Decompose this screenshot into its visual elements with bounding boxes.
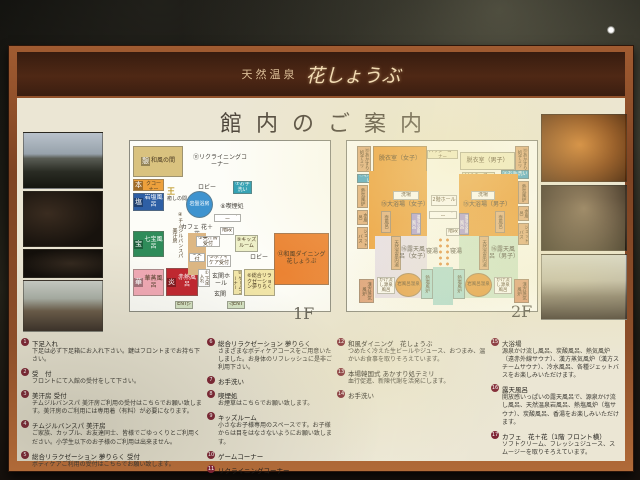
photo-interior-dark-2 xyxy=(23,249,103,278)
f1-shoe-lockers: ①下足入れ xyxy=(198,269,210,287)
flame-icon: 炎 xyxy=(167,278,176,287)
f2-temiri-left: ⑬あかすり処テミリ xyxy=(357,146,371,172)
f2-main-bath-men: ⑮大浴場（男子） xyxy=(463,202,511,209)
photo-bath-warm xyxy=(541,114,627,182)
room-label: 和風の間 xyxy=(151,158,175,165)
floor1-label: 1F xyxy=(293,304,314,323)
legend-desc: ご家族、カップル、お友達同士、皆様でごゆっくりとご利用ください。小学生以下のお子… xyxy=(32,430,203,446)
legend-title: 下足入れ xyxy=(32,338,58,348)
legend-item: 8喫煙処 お煙草はこちらでお願い致します。 xyxy=(207,390,333,408)
f1-room-kasho-bath: 華 華蒸風呂 xyxy=(133,269,164,296)
legend-title: 本場韓国式 あかすり処テミリ xyxy=(348,368,435,378)
legend-item: 11リクライニングコーナー xyxy=(207,465,333,475)
legend-number: 2 xyxy=(21,368,29,376)
photo-building-exterior xyxy=(23,132,103,189)
legend-item: 12和風ダイニング 花しょうぶ つめたく冷えた生ビールやジュース、おつまみ、温か… xyxy=(337,338,487,364)
legend-item: 3美汗房 受付 チムジルバンスパ 美汗房ご利用の受付はこちらでお願い致します。美… xyxy=(21,390,203,416)
f2-salt-sauna-right: 熱塩風炉 xyxy=(453,269,465,299)
f2-powder-corner-left: パウダーコーナー xyxy=(427,150,458,159)
legend-title: 総合リラクゼーション 夢りらく 受付 xyxy=(32,451,140,461)
legend-number: 3 xyxy=(21,390,29,398)
f2-jet-bath-right: ジェットバス xyxy=(518,223,529,245)
f1-ent-right: ◁ENT xyxy=(227,301,245,309)
stepping-stones-left xyxy=(438,237,443,267)
sunlight-dot xyxy=(607,26,615,34)
f1-room-shippo-bath: 宝 七宝風呂 xyxy=(133,231,164,257)
treasure-icon: 宝 xyxy=(134,240,143,249)
f2-hall: 2階ホール xyxy=(431,195,457,206)
legend-number: 8 xyxy=(207,390,215,398)
legend-number: 7 xyxy=(207,376,215,384)
legend-item: 4チムジルバンスパ 美汗房 ご家族、カップル、お友達同士、皆様でごゆっくりとご利… xyxy=(21,420,203,446)
legend-title: 和風ダイニング 花しょうぶ xyxy=(348,338,433,348)
photo-outdoor-rock-bath xyxy=(541,185,627,251)
legend-desc: チムジルバンスパ 美汗房ご利用の受付はこちらでお願い致します。美汗房のご利用には… xyxy=(32,400,203,416)
legend-title: 露天風呂 xyxy=(502,384,528,394)
brand-prefix: 天然温泉 xyxy=(241,66,297,82)
photo-relax-room xyxy=(541,254,627,320)
f2-main-bath-women: ⑮大浴場（女子） xyxy=(381,202,427,209)
legend-column-3: 12和風ダイニング 花しょうぶ つめたく冷えた生ビールやジュース、おつまみ、温か… xyxy=(337,338,487,404)
f2-sauna-right: 熱気風炉 xyxy=(518,181,529,204)
legend-number: 17 xyxy=(491,431,499,439)
legend-number: 1 xyxy=(21,338,29,346)
f1-game-corner: ⑩ゲームコーナー xyxy=(233,270,242,295)
legend-title: 総合リラクゼーション 夢りらく xyxy=(218,338,311,348)
legend-item: 6総合リラクゼーション 夢りらく さまざまなボディケアコースをご用意いたしました… xyxy=(207,338,333,372)
legend-column-4: 15大浴場 源泉かけ流し風呂、炭酸風呂、熱気風炉（遠赤外線サウナ）、漢方蒸気風炉… xyxy=(491,338,621,461)
room-label: 七宝風呂 xyxy=(144,237,163,251)
f2-washing-area-right: 洗場 xyxy=(471,191,495,200)
room-label: 華蒸風呂 xyxy=(144,276,163,290)
f1-ent-left: ENT▷ xyxy=(175,301,193,309)
legend-desc: ソフトクリーム、フレッシュジュース、スムージーを取りそろえています。 xyxy=(502,441,621,457)
legend-number: 10 xyxy=(207,451,215,459)
floor2-label: 2F xyxy=(511,302,532,321)
legend-number: 5 xyxy=(21,451,29,459)
f2-cold-bath-left: 水風呂 xyxy=(357,210,368,225)
legend-column-1: 1下足入れ 下足は必ず下足箱にお入れ下さい。鍵はフロントまでお持ち下さい。 2受… xyxy=(21,338,203,473)
room-label: 岩塩風呂 xyxy=(144,195,163,209)
f2-elevator: エレベーター xyxy=(429,211,457,219)
legend-number: 12 xyxy=(337,338,345,346)
f2-indoor-spring-right: 天然温泉内湯 xyxy=(479,236,489,270)
f2-free-flowing-spring-men: かけ流し源泉風呂 xyxy=(494,277,512,294)
f1-iyashi-room: 癒しの間 xyxy=(166,197,188,203)
legend-title: 美汗房 受付 xyxy=(32,390,67,400)
legend-title: ゲームコーナー xyxy=(218,451,263,461)
legend-title: チムジルバンスパ 美汗房 xyxy=(32,420,106,430)
f1-reclining-corner: ⑪リクライニングコーナー xyxy=(192,155,248,169)
legend-desc: 血行促進、新陳代謝を活発にします。 xyxy=(348,378,487,386)
f2-salt-sauna-left: 熱塩風炉 xyxy=(421,269,433,299)
legend-title: キッズルーム xyxy=(218,412,257,422)
legend-desc: ボディケアご利用の受付はこちらでお願い致します。 xyxy=(32,461,203,469)
brand-logo: 花しょうぶ xyxy=(305,61,400,88)
sign-header-bar: 天然温泉 花しょうぶ xyxy=(17,52,625,96)
room-label: コミックコーナー xyxy=(144,179,163,191)
legend-item: 17カフェ 花＋花（1階 フロント横） ソフトクリーム、フレッシュジュース、スム… xyxy=(491,431,621,457)
floor2-plan: ⑬あかすり処テミリ 脱衣室（女子） パウダーコーナー 脱衣室（男子） パウダーコ… xyxy=(346,140,538,312)
legend-item: 15大浴場 源泉かけ流し風呂、炭酸風呂、熱気風炉（遠赤外線サウナ）、漢方蒸気風炉… xyxy=(491,338,621,380)
f2-dressing-room-men: 脱衣室（男子） xyxy=(460,152,515,170)
f1-entrance: 玄関 xyxy=(212,292,228,299)
f2-temiri-right: ⑬あかすり処テミリ xyxy=(515,146,529,172)
legend-title: リクライニングコーナー xyxy=(218,465,290,475)
f1-elevator: エレベーター xyxy=(214,214,241,222)
f2-open-air-bath-men: ⑯露天風呂（男子） xyxy=(489,247,517,261)
f2-jet-bath-left: ジェットバス xyxy=(357,227,368,249)
legend-title: 喫煙処 xyxy=(218,390,238,400)
f2-cold-bath-right: 水風呂 xyxy=(518,206,529,221)
legend-item: 10ゲームコーナー xyxy=(207,451,333,461)
f1-ganban-bath: 岩盤浴房 xyxy=(186,191,213,218)
legend-item: 7お手洗い xyxy=(207,376,333,386)
f2-rock-bath-men: 岩風呂温泉 xyxy=(465,273,492,297)
f2-lying-bath-left: 寝湯 xyxy=(426,249,438,256)
f2-dressing-room-women: 脱衣室（女子） xyxy=(373,146,427,173)
legend-number: 16 xyxy=(491,384,499,392)
f1-kids-room: ⑨キッズルーム xyxy=(235,235,258,252)
f2-pot-bath-right: 壺風呂 xyxy=(495,211,505,233)
legend-title: お手洗い xyxy=(218,376,244,386)
f1-bodycare-reception: ⑤ボディケア受付 xyxy=(207,255,231,267)
f2-outdoor-carbonated-left: 露天炭酸風呂 xyxy=(411,213,421,235)
room-label: 赤熱風呂 xyxy=(177,275,197,289)
f2-pot-bath-left: 壺風呂 xyxy=(381,211,391,233)
legend-number: 15 xyxy=(491,338,499,346)
sign-panel: 館内のご案内 憩 和風の間 本 コミックコーナー 塩 岩塩風呂 宝 xyxy=(17,98,625,461)
legend-desc: 源泉かけ流し風呂、炭酸風呂、熱気風炉（遠赤外線サウナ）、漢方蒸気風炉（漢方スチー… xyxy=(502,348,621,380)
legend-desc: お煙草はこちらでお願い致します。 xyxy=(218,400,333,408)
photo-lounge-interior xyxy=(23,280,103,332)
f1-japanese-dining: ⑫和風ダイニング花しょうぶ xyxy=(274,233,329,285)
f2-rock-bath-women: 岩風呂温泉 xyxy=(395,273,422,297)
legend-item: 9キッズルーム 小さなお子様専用のスペースです。お子様からは目をはなさないように… xyxy=(207,412,333,446)
flower-icon: 華 xyxy=(134,278,143,287)
legend-desc: つめたく冷えた生ビールやジュース、おつまみ、温かいお食事を取りそろえています。 xyxy=(348,348,487,364)
f1-lobby-lower: ロビー xyxy=(248,255,270,262)
f2-herbal-steam-right: 漢方蒸気風炉 xyxy=(514,279,529,303)
f1-stairs: 階段 xyxy=(220,227,234,235)
legend-desc: さまざまなボディケアコースをご用意いたしました。お身体のリフレッシュに是非ご利用… xyxy=(218,348,333,372)
f2-open-air-bath-women: ⑯露天風呂（女子） xyxy=(399,247,427,261)
legend-item: 13本場韓国式 あかすり処テミリ 血行促進、新陳代謝を活発にします。 xyxy=(337,368,487,386)
ikoi-icon: 憩 xyxy=(141,157,150,166)
f2-outdoor-carbonated-right: 露天炭酸風呂 xyxy=(459,213,469,235)
legend-title: 受 付 xyxy=(32,368,52,378)
f2-free-flowing-spring-women: かけ流し源泉風呂 xyxy=(377,277,395,294)
legend-title: カフェ 花＋花（1階 フロント横） xyxy=(502,431,606,441)
f1-room-washitsu: 憩 和風の間 xyxy=(133,146,183,177)
book-icon: 本 xyxy=(134,181,143,190)
legend-number: 9 xyxy=(207,412,215,420)
f2-washing-area-left: 洗場 xyxy=(393,191,419,200)
f1-yumeriraku: ⑥総合リラクゼーション夢りらく xyxy=(244,269,275,296)
legend-title: お手洗い xyxy=(348,390,374,400)
page-title: 館内のご案内 xyxy=(17,106,625,138)
legend-number: 11 xyxy=(207,465,215,473)
f1-smoking-room: ⑧喫煙処 xyxy=(220,204,244,211)
floor1-plan: 憩 和風の間 本 コミックコーナー 塩 岩塩風呂 宝 七宝風呂 華 華蒸風呂 炎… xyxy=(129,140,331,312)
legend-item: 16露天風呂 開放感いっぱいの露天風呂で、源泉かけ流し風呂、天然温泉岩風呂、熱塩… xyxy=(491,384,621,426)
f1-bikanbo-reception: ③美汗房受付 xyxy=(196,236,220,247)
legend-item: 14お手洗い xyxy=(337,390,487,400)
f1-restroom: ⑦お手洗い xyxy=(233,181,252,194)
legend-desc: フロントにて入館の受付をして下さい。 xyxy=(32,378,203,386)
legend-column-2: 6総合リラクゼーション 夢りらく さまざまなボディケアコースをご用意いたしました… xyxy=(207,338,333,479)
f1-front-reception: ②受付 xyxy=(189,253,205,262)
salt-icon: 塩 xyxy=(134,198,143,207)
legend-item: 1下足入れ 下足は必ず下足箱にお入れ下さい。鍵はフロントまでお持ち下さい。 xyxy=(21,338,203,364)
legend-item: 5総合リラクゼーション 夢りらく 受付 ボディケアご利用の受付はこちらでお願い致… xyxy=(21,451,203,469)
legend-number: 13 xyxy=(337,368,345,376)
f1-room-rock-salt-bath: 塩 岩塩風呂 xyxy=(133,193,164,211)
information-signboard: 天然温泉 花しょうぶ 館内のご案内 憩 和風の間 本 コミックコーナー 塩 岩塩… xyxy=(8,45,634,472)
f1-entrance-hall: 玄関ホール xyxy=(212,274,230,288)
legend-number: 6 xyxy=(207,338,215,346)
legend-number: 4 xyxy=(21,420,29,428)
legend-title: 大浴場 xyxy=(502,338,522,348)
f2-sauna-left: 熱気風炉 xyxy=(357,185,368,208)
legend-number: 14 xyxy=(337,390,345,398)
legend-desc: 下足は必ず下足箱にお入れ下さい。鍵はフロントまでお持ち下さい。 xyxy=(32,348,203,364)
f2-center-corridor xyxy=(433,267,453,305)
f2-herbal-steam-left: 漢方蒸気風炉 xyxy=(359,279,374,303)
f2-lying-bath-right: 寝湯 xyxy=(450,249,462,256)
f1-room-comic-corner: 本 コミックコーナー xyxy=(133,179,164,191)
legend-desc: 開放感いっぱいの露天風呂で、源泉かけ流し風呂、天然温泉岩風呂、熱塩風炉（塩サウナ… xyxy=(502,394,621,426)
f2-stairs: 階段 xyxy=(446,228,460,236)
legend-desc: 小さなお子様専用のスペースです。お子様からは目をはなさないようにお願い致します。 xyxy=(218,422,333,446)
legend-item: 2受 付 フロントにて入館の受付をして下さい。 xyxy=(21,368,203,386)
photo-interior-dark-1 xyxy=(23,191,103,247)
